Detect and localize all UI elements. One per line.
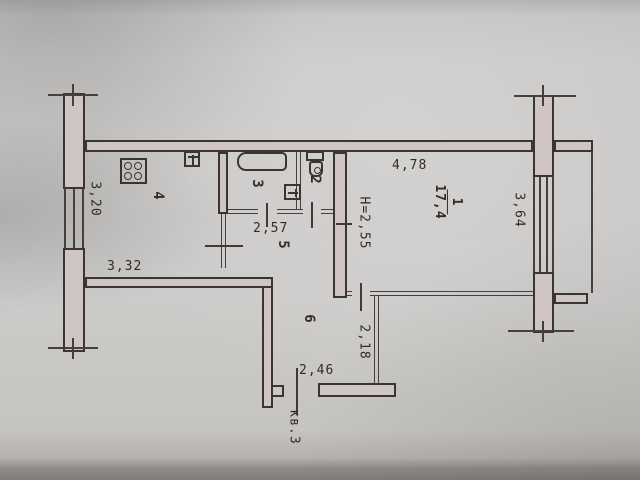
bathtub-icon bbox=[237, 152, 287, 171]
stove-icon bbox=[120, 158, 147, 184]
wall-stub-right-bottom bbox=[554, 293, 588, 304]
room-1-area: 17,4 bbox=[431, 182, 447, 221]
toilet-circle bbox=[314, 167, 321, 174]
partition-room1-bottom bbox=[347, 291, 352, 296]
dim-3-20: 3,20 bbox=[88, 181, 103, 216]
room-3-number: 3 bbox=[249, 179, 265, 188]
pillar-right-top bbox=[533, 95, 554, 177]
partition-wc-bottom bbox=[321, 209, 333, 214]
room-1-number: 1 bbox=[447, 190, 463, 215]
partition-room1-bottom bbox=[370, 291, 533, 296]
stove-burner bbox=[134, 162, 142, 170]
survey-cross bbox=[508, 330, 574, 332]
survey-cross bbox=[514, 95, 576, 97]
door-mark-hall-room1 bbox=[336, 223, 352, 225]
pillar-left-top bbox=[63, 93, 85, 189]
stove-burner bbox=[134, 172, 142, 180]
dim-2-18: 2,18 bbox=[357, 324, 372, 359]
door-mark-kitchen bbox=[205, 245, 243, 247]
washbasin-icon bbox=[284, 184, 301, 200]
pillar-left-bottom bbox=[63, 248, 85, 352]
door-mark-wc bbox=[311, 202, 313, 228]
balcony-outline-line bbox=[591, 152, 593, 293]
window-left-line bbox=[73, 188, 75, 248]
survey-cross bbox=[72, 84, 74, 106]
window-left-line bbox=[82, 188, 84, 248]
wall-stub-right-top bbox=[554, 140, 593, 152]
washbasin-tap bbox=[295, 189, 297, 197]
window-left-line bbox=[64, 188, 66, 248]
wall-entrance-stub bbox=[271, 385, 284, 397]
partition-bath-bottom bbox=[228, 209, 258, 214]
dim-3-32: 3,32 bbox=[107, 259, 142, 274]
wall-room1-left bbox=[333, 152, 347, 298]
survey-cross bbox=[542, 85, 544, 106]
room-5-number: 5 bbox=[275, 240, 291, 249]
partition-corridor bbox=[374, 296, 379, 385]
window-right-line bbox=[552, 177, 554, 272]
room-6-number: 6 bbox=[301, 314, 317, 323]
stove-burner bbox=[124, 162, 132, 170]
survey-cross bbox=[72, 338, 74, 359]
wall-entrance-slab bbox=[318, 383, 396, 397]
room-1-number-area: 1 17,4 bbox=[431, 182, 463, 221]
window-right-line bbox=[539, 177, 541, 272]
room-2-number: 2 bbox=[307, 175, 323, 184]
scanned-floorplan-photo: 4 3 2 5 6 1 17,4 3,32 2,57 4,78 2,46 3,2… bbox=[0, 0, 640, 480]
dim-3-64: 3,64 bbox=[512, 192, 527, 227]
dim-4-78: 4,78 bbox=[392, 158, 427, 173]
window-right-line bbox=[546, 177, 548, 272]
dim-2-46: 2,46 bbox=[299, 363, 334, 378]
stove-burner bbox=[124, 172, 132, 180]
sink-icon bbox=[184, 151, 200, 167]
apartment-label: кв.3 bbox=[287, 409, 302, 444]
room-4-number: 4 bbox=[150, 191, 166, 200]
partition-kitchen-hall bbox=[221, 214, 226, 268]
door-mark-room1 bbox=[360, 283, 362, 311]
partition-bath-wc bbox=[296, 152, 301, 210]
dim-h-2-55: H=2,55 bbox=[357, 197, 372, 250]
window-right-line bbox=[533, 177, 535, 272]
wall-bottom-horizontal bbox=[85, 277, 273, 288]
door-mark-entrance bbox=[296, 368, 298, 415]
sink-bar bbox=[188, 156, 198, 158]
dim-2-57: 2,57 bbox=[253, 221, 288, 236]
toilet-icon bbox=[306, 151, 324, 161]
survey-cross bbox=[542, 321, 544, 342]
wall-kitchen-bath bbox=[218, 152, 228, 214]
